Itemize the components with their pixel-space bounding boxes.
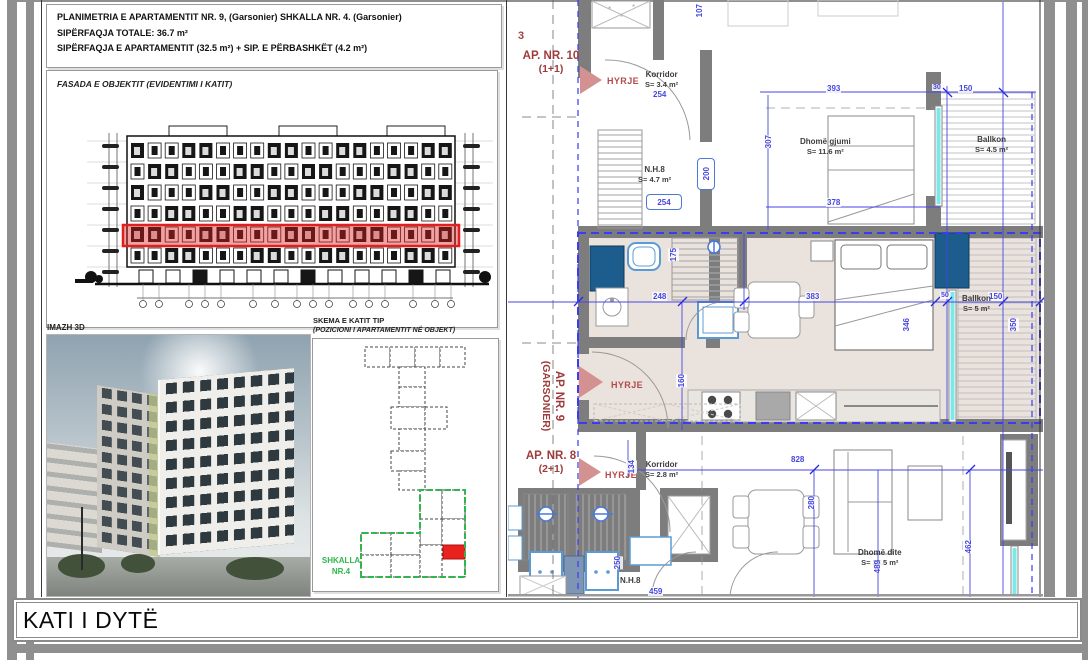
dimension-label: 160 [676, 374, 687, 387]
room-label-ballkon-ap9: Ballkon S= 5 m² [962, 294, 991, 313]
room-label-ballkon-ap10: Ballkon S= 4.5 m² [975, 135, 1008, 154]
facade-drawing [47, 115, 495, 315]
building-side-facade [97, 385, 160, 557]
dimension-label: 50 [940, 292, 950, 299]
header-line-2: SIPËRFAQJA TOTALE: 36.7 m² [57, 26, 501, 42]
room-label-korridor-ap10: Korridor S= 3.4 m² [645, 70, 678, 89]
room-label-korridor-ap8: Korridor S= 2.8 m² [645, 460, 678, 479]
sheet-border-bottom [7, 644, 1084, 653]
svg-text:*: * [632, 3, 635, 12]
dimension-label: 107 [694, 4, 705, 17]
bush [226, 557, 284, 580]
dimension-label: 254 [652, 90, 667, 99]
dimension-label: 489 [872, 560, 883, 573]
entry-label-ap9: HYRJE [611, 380, 643, 390]
skema-panel: SHKALLA NR.4 [312, 338, 499, 592]
image3d-photo [46, 334, 311, 597]
apartment-label-ap8: AP. NR. 8 (2+1) [514, 450, 588, 476]
dimension-label: 828 [790, 455, 805, 464]
skema-stair-number: NR.4 [332, 567, 351, 576]
room-label-nh8-bottom: N.H.8 [620, 576, 640, 586]
background-building [46, 441, 102, 553]
room-label-dhome-gjumi: Dhomë gjumi S= 11.6 m² [800, 137, 851, 156]
apartment-label-ap9: AP. NR. 9 (GARSONIER) [537, 331, 565, 461]
skema-subtitle: (POZICIONI I APARTAMENTIT NË OBJEKT) [313, 327, 455, 334]
grid-axis-label: 3 [518, 30, 524, 42]
dimension-label: 175 [668, 248, 679, 261]
entry-label-ap10: HYRJE [607, 76, 639, 86]
frame-line-left [41, 0, 42, 597]
dimension-label: 250 [612, 556, 623, 569]
sheet-title: KATI I DYTË [17, 609, 158, 632]
bush [121, 554, 155, 572]
facade-panel-title: FASADA E OBJEKTIT (EVIDENTIMI I KATIT) [57, 79, 232, 89]
skema-stair-label: SHKALLA [322, 556, 360, 565]
skema-key-plan: SHKALLA NR.4 [313, 339, 498, 591]
image3d-title: IMAZH 3D [47, 323, 85, 332]
dimension-label: 383 [805, 292, 820, 301]
facade-panel: FASADA E OBJEKTIT (EVIDENTIMI I KATIT) [46, 70, 498, 328]
dimension-label: 346 [901, 318, 912, 331]
door-tag: 200 [697, 158, 715, 190]
sheet-border-left-outer [7, 0, 17, 660]
skema-title: SKEMA E KATIT TIP [313, 316, 384, 325]
sheet-border-left-inner [26, 0, 34, 660]
door-tag: 254 [646, 194, 682, 210]
title-block: KATI I DYTË [12, 598, 1082, 642]
building-front-facade [160, 368, 294, 555]
frame-line-middle [506, 0, 507, 597]
dimension-label: 134 [626, 460, 637, 473]
dimension-label: 393 [826, 84, 841, 93]
dimension-label: 307 [763, 135, 774, 148]
svg-text:*: * [620, 13, 623, 22]
apartment-label-ap10: AP. NR. 10 (1+1) [514, 50, 588, 76]
drawing-sheet: PLANIMETRIA E APARTAMENTIT NR. 9, (Garso… [0, 0, 1090, 663]
skema-highlight-apartment [443, 545, 465, 559]
dimension-label: 150 [958, 84, 973, 93]
title-block-inner: KATI I DYTË [16, 602, 1078, 638]
header-line-1: PLANIMETRIA E APARTAMENTIT NR. 9, (Garso… [57, 10, 501, 26]
header-line-3: SIPËRFAQJA E APARTAMENTIT (32.5 m²) + SI… [57, 41, 501, 57]
dimension-label: 280 [806, 496, 817, 509]
dimension-label: 459 [648, 587, 663, 596]
svg-text:*: * [608, 5, 611, 14]
room-label-nh8-top: N.H.8 S= 4.7 m² [638, 165, 671, 184]
header-info-box: PLANIMETRIA E APARTAMENTIT NR. 9, (Garso… [46, 4, 502, 68]
dimension-label: 350 [1008, 318, 1019, 331]
street-lamp [81, 507, 83, 570]
dimension-label: 378 [826, 198, 841, 207]
dimension-label: 248 [652, 292, 667, 301]
dimension-label: 462 [963, 540, 974, 553]
dimension-label: 30 [932, 84, 942, 91]
